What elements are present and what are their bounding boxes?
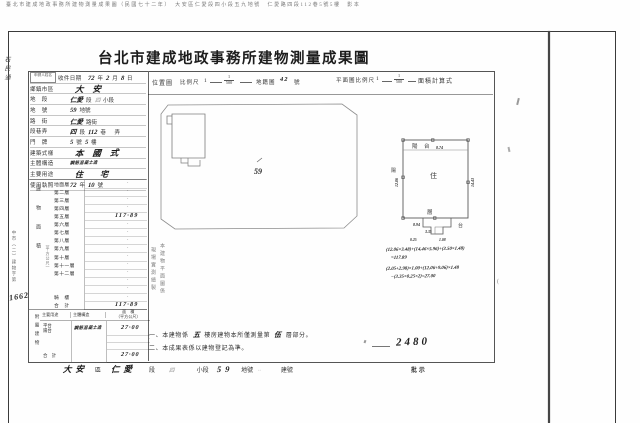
form-row: 建築式樣本國式 (30, 148, 146, 159)
form-row: 路 街仁愛路街 (30, 116, 146, 127)
strip-printed-label: 建號 (281, 365, 293, 374)
calc-line: =117.89 (391, 253, 495, 263)
handwritten-text: 仁愛 (70, 94, 84, 104)
stamp-dash (372, 346, 390, 347)
handwritten-text: 59 (70, 107, 77, 114)
attached-structure-cell (72, 349, 107, 362)
building-register-number: 2480 (396, 335, 430, 348)
form-row: 段巷弄四段112巷 弄 (30, 126, 146, 137)
strip-printed-label: 段 (149, 365, 155, 374)
decimal-dot: · (127, 246, 129, 251)
floor-row-label: 第十層 (51, 253, 85, 261)
stray-mark: ( (497, 279, 499, 285)
floor-row-label: 第四層 (51, 204, 85, 212)
decimal-dot: · (127, 189, 129, 194)
printed-text: 樓 (91, 138, 97, 146)
floor-row-label: 第十二層 (51, 269, 85, 277)
attached-area-handwritten: 27·00 (121, 352, 140, 358)
decimal-dot: · (127, 270, 129, 275)
dim-left: 12.06 (394, 178, 399, 187)
strip-handwritten-value: ·· (258, 368, 261, 374)
dim-annex-height: 1.08 (439, 238, 446, 242)
fraction-denominator: 500 (396, 80, 402, 85)
decimal-dot: · (127, 254, 129, 259)
strip-handwritten-value: 仁愛 (111, 363, 137, 375)
attached-group-label: 附屬建物 (29, 310, 40, 362)
attached-use-text: 合 計 (43, 353, 71, 359)
calc-line: −(3.35×0.25×2)=27.00 (391, 273, 495, 283)
balcony-label-left: 陽 (412, 142, 418, 150)
scale-numeral: 1 (204, 78, 208, 84)
scale-fraction: 1 500 (224, 75, 234, 86)
floor-plan-scale-numeral: 1 (376, 76, 380, 82)
strip-printed-label: 地號 (241, 365, 253, 374)
form-row-value: 四段112巷 弄 (58, 126, 146, 136)
decimal-dot: · (127, 238, 129, 243)
scale-dash (382, 81, 392, 82)
handwritten-text: 大安 (70, 82, 111, 95)
form-row-label: 主要用途 (30, 170, 58, 178)
handwritten-text: 2 (106, 75, 110, 82)
scale-label: 比例尺 (180, 78, 200, 86)
side-label: 陽 (391, 167, 396, 174)
form-row-label: 鄉鎮市區 (30, 85, 58, 93)
attached-use-cell: 平台陽台 (40, 321, 72, 335)
printed-text: 月 (112, 74, 118, 82)
strip-printed-label: 批示 (411, 365, 427, 374)
map-header-strip: 位置圖 比例尺 1 1 500 地籍圖 42 號 平面圖比例尺 1 1 500 … (148, 72, 493, 95)
strip-handwritten-value: 四 (169, 366, 175, 374)
dim-top: 8.74 (436, 145, 443, 150)
attached-use-cell (40, 335, 72, 342)
decimal-dot: · (127, 230, 129, 235)
form-row-label: 主體構造 (30, 159, 58, 167)
attached-rows: 平台陽台鋼筋混凝土造27·00··合 計27·00 (40, 321, 150, 362)
floor-plan-scale-fraction: 1 500 (394, 74, 404, 85)
floor-row-label: 第九層 (51, 245, 85, 253)
attached-value-cell: 27·00 (107, 321, 150, 336)
scale-dash (210, 82, 222, 83)
form-row: 地 號59地號 (30, 105, 146, 116)
handwritten-text: 8 (121, 75, 125, 82)
floor-plan-drawing: 陽 台 8.74 陽 住 層 12.06 14.43 8.94 台 3.35 1… (383, 123, 511, 248)
handwritten-text: 112 (88, 129, 98, 136)
handwritten-text: 5 (70, 139, 74, 146)
floor-row-label (51, 285, 85, 293)
printed-text: 小段 (103, 96, 114, 104)
vertical-note-col-2: 現場實測繪製 (149, 247, 156, 335)
floor-area-group-label: 建物面積 (29, 180, 41, 310)
building-footprint (167, 114, 205, 158)
printed-text: 地號 (80, 106, 91, 114)
attached-row: 平台陽台鋼筋混凝土造27·00 (40, 321, 150, 335)
floor-plan-scale-label: 平面圖比例尺 (336, 76, 375, 84)
cadastre-number-suffix: 號 (294, 78, 301, 86)
scale-dash (408, 81, 416, 82)
handwritten-text: 本國式 (70, 146, 128, 159)
decimal-dot: · (127, 205, 129, 210)
location-map-label: 位置圖 (152, 78, 173, 87)
form-row-value: 5號5樓 (58, 138, 146, 146)
dim-annex-depth: 0.25 (410, 238, 417, 242)
floor-row-label: 第七層 (51, 229, 85, 237)
floor-row-label (51, 277, 85, 285)
decimal-dot: · (127, 181, 129, 186)
form-row-value: 大安 (58, 83, 146, 95)
form-row-label: 地 號 (30, 106, 58, 114)
decimal-dot: · (127, 222, 129, 227)
printed-text: 樓房建物本所僅測量第 (204, 333, 270, 339)
floor-row-label: 第六層 (51, 221, 85, 229)
printed-text: 日 (127, 74, 133, 82)
attached-use-cell: 合 計 (40, 349, 72, 362)
floor-row-label: 騎 樓 (51, 294, 85, 302)
floor-area-unit-label: （平方公尺） (41, 180, 51, 310)
decimal-dot: · (127, 278, 129, 283)
parcel-tick-mark (257, 158, 262, 162)
printed-text: 巷 (100, 128, 106, 136)
balcony-label-right: 台 (424, 142, 430, 150)
attached-building-block: 附屬建物 主要用途 主體構造 面 積 （平方公尺） 平台陽台鋼筋混凝土造27·0… (29, 309, 147, 362)
strip-printed-label: 區 (95, 365, 101, 374)
strip-handwritten-value: 大安 (63, 363, 89, 375)
form-row-label: 路 街 (30, 117, 58, 125)
floor-row-label: 第八層 (51, 237, 85, 245)
form-row-value: 住宅 (58, 169, 146, 180)
cadastre-map-number: 42 (280, 76, 289, 83)
printed-text: 二、本成果表係以建物登記為準。 (149, 346, 248, 352)
floor-label: 層 (427, 209, 433, 216)
handwritten-text: 72 (88, 75, 95, 82)
form-row-value: 本國式 (58, 147, 146, 159)
printed-text: 層部分。 (286, 333, 312, 339)
form-row-label: 地 段 (30, 95, 58, 103)
area-calculation-lines: (12.06×3.48)+(14.46×5.96)+(3.50×1.48)=11… (386, 246, 494, 282)
strip-handwritten-value: 59 (216, 364, 233, 374)
parcel-number-label: 59 (254, 167, 262, 176)
attached-use-cell (40, 342, 72, 349)
floor-row-label: 第三層 (51, 196, 85, 204)
attached-structure-cell (72, 335, 107, 342)
location-map-drawing: 59 (148, 94, 388, 242)
handwritten-text: 5 (85, 139, 89, 146)
handwritten-text: 伍 (274, 330, 282, 340)
attached-structure-cell (72, 342, 107, 349)
printed-text: 年 (98, 74, 104, 82)
handwritten-text: 鋼筋混凝土造 (74, 325, 102, 331)
floor-area-block: 建物面積 （平方公尺） 地面層·第二層·第三層·第四層·第五層117·89第六層… (29, 179, 147, 310)
floor-rows: 地面層·第二層·第三層·第四層·第五層117·89第六層·第七層·第八層·第九層… (51, 180, 147, 310)
applicant-name-box: 申請人姓名 (30, 72, 56, 83)
attached-row: 合 計27·00 (40, 349, 150, 362)
annex-inner-box (435, 227, 443, 234)
form-row-value: 鋼筋混凝土造 (58, 160, 146, 166)
attached-structure-cell: 鋼筋混凝土造 (72, 321, 107, 335)
attached-structure-header: 主體構造 (71, 312, 106, 318)
handwritten-text: 四 (94, 96, 100, 104)
scale-dash (240, 82, 252, 83)
floor-area-handwritten: 117·89 (115, 302, 139, 308)
form-row: 鄉鎮市區大安 (30, 84, 146, 95)
survey-document-sheet: 臺北市建成地政事務所建物測量成果圖（民國七十二年） 大安區仁愛段四小段五九地號 … (0, 0, 640, 423)
decimal-dot: · (127, 295, 129, 300)
printed-text: 路街 (86, 118, 97, 126)
printed-text: 一、本建物係 (149, 333, 189, 339)
form-row-value: 仁愛路街 (58, 116, 146, 126)
handwritten-text: 鋼筋混凝土造 (70, 160, 98, 166)
handwritten-text: 四 (70, 126, 77, 136)
form-row-value: 72年2月8日 (86, 74, 146, 82)
attached-use-header: 主要用途 (40, 312, 71, 318)
handwritten-text: 五 (192, 330, 200, 340)
attached-use-text: 陽台 (43, 328, 71, 334)
annex-label: 台 (458, 222, 463, 229)
strip-printed-label: 小段 (197, 365, 209, 374)
attached-area-handwritten: 27·00 (121, 325, 140, 331)
form-row-value: 59地號 (58, 106, 146, 114)
form-field-rows: 申請人姓名收件日期72年2月8日鄉鎮市區大安地 段仁愛段四小段地 號59地號路 … (30, 73, 146, 191)
fold-line-artifact (548, 31, 550, 423)
cadastre-map-label: 地籍圖 (256, 78, 276, 86)
form-row-label: 段巷弄 (30, 127, 58, 135)
floor-row-label: 地面層 (51, 180, 85, 188)
bottom-location-strip: 大安區仁愛段四小段59地號··建號批示 (60, 363, 510, 375)
printed-text: 號 (76, 138, 82, 146)
form-row: 地 段仁愛段四小段 (30, 94, 146, 105)
dim-bottom: 8.94 (413, 222, 420, 227)
decimal-dot: · (127, 286, 129, 291)
form-row-label: 建築式樣 (30, 149, 58, 157)
document-title: 台北市建成地政事務所建物測量成果圖 (98, 47, 370, 68)
case-number-printed: 中市（二）建物字第 (11, 230, 17, 294)
margin-handwriting: 石民通 (2, 56, 11, 83)
printed-text: 段 (86, 96, 92, 104)
building-step-detail (181, 158, 200, 166)
floor-row-label: 第二層 (51, 188, 85, 196)
decimal-dot: · (127, 197, 129, 202)
archive-caption: 臺北市建成地政事務所建物測量成果圖（民國七十二年） 大安區仁愛段四小段五九地號 … (6, 1, 486, 8)
fraction-denominator: 500 (226, 81, 232, 86)
dim-right: 14.43 (470, 178, 475, 187)
printed-text: 弄 (109, 128, 120, 136)
floor-area-handwritten: 117·89 (115, 213, 139, 219)
attached-value-cell: 27·00 (107, 349, 150, 363)
decimal-dot: · (127, 262, 129, 267)
unit-label: 住 (430, 171, 437, 180)
handwritten-text: 仁愛 (70, 115, 84, 125)
area-calculation-label: 面積計算式 (418, 76, 453, 85)
dim-annex-width: 3.35 (424, 230, 432, 234)
floor-row-label: 第十一層 (51, 261, 85, 269)
floor-row-label: 第五層 (51, 212, 85, 220)
form-row-label: 收件日期 (58, 74, 86, 82)
attached-area-header: 面 積 （平方公尺） (106, 310, 150, 319)
vertical-note-col-1: 本建物平面圖係 (158, 243, 165, 331)
form-row-value: 仁愛段四小段 (58, 94, 146, 104)
form-row-label: 門 牌 (30, 138, 58, 146)
printed-text: 段 (80, 128, 86, 136)
attached-header-row: 主要用途 主體構造 面 積 （平方公尺） (40, 310, 150, 321)
attached-area-unit: （平方公尺） (116, 314, 141, 319)
